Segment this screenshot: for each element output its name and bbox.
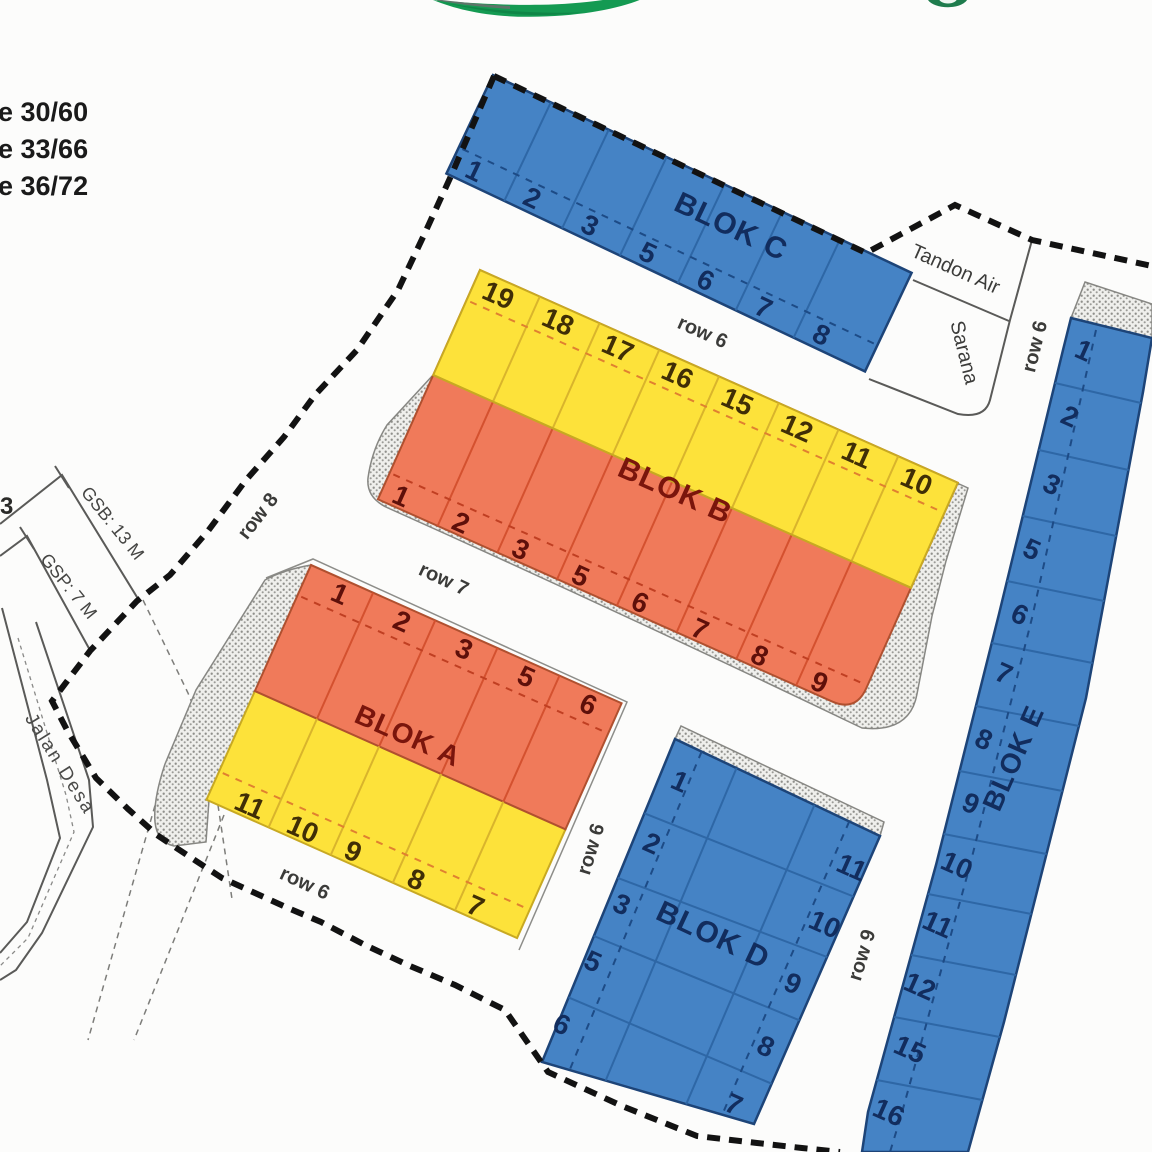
svg-text:e 36/72: e 36/72 (0, 171, 88, 201)
svg-text:3: 3 (0, 493, 13, 520)
svg-text:e 30/60: e 30/60 (0, 97, 88, 127)
svg-text:e 33/66: e 33/66 (0, 134, 88, 164)
